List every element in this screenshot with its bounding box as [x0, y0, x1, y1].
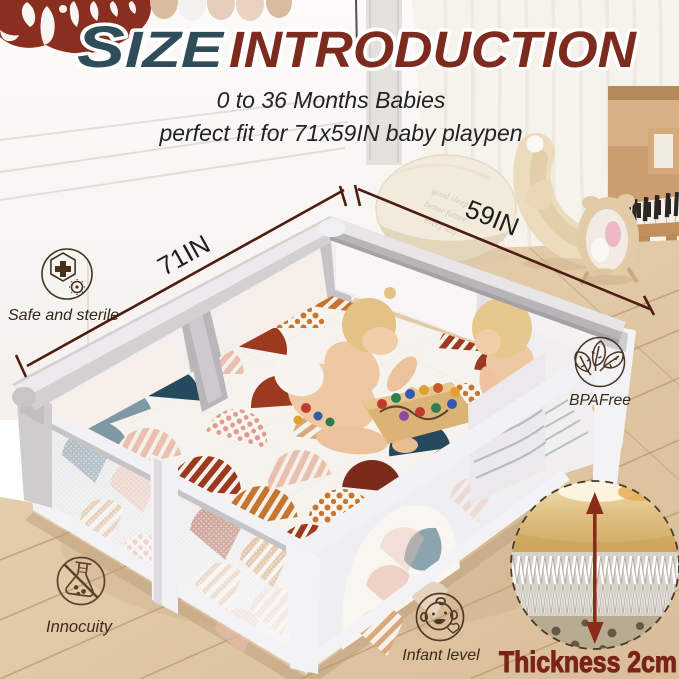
- svg-text:Infant level: Infant level: [402, 647, 480, 664]
- svg-text:perfect fit for 71x59IN baby p: perfect fit for 71x59IN baby playpen: [158, 120, 522, 146]
- svg-text:BPAFree: BPAFree: [569, 392, 631, 409]
- svg-text:Safe and sterile: Safe and sterile: [8, 307, 119, 324]
- svg-text:Thickness 2cm: Thickness 2cm: [499, 646, 677, 679]
- svg-text:Innocuity: Innocuity: [46, 618, 114, 636]
- svg-text:0 to 36 Months Babies: 0 to 36 Months Babies: [217, 87, 446, 113]
- svg-text:INTRODUCTION: INTRODUCTION: [229, 21, 637, 78]
- svg-text:SIZE: SIZE: [77, 15, 225, 80]
